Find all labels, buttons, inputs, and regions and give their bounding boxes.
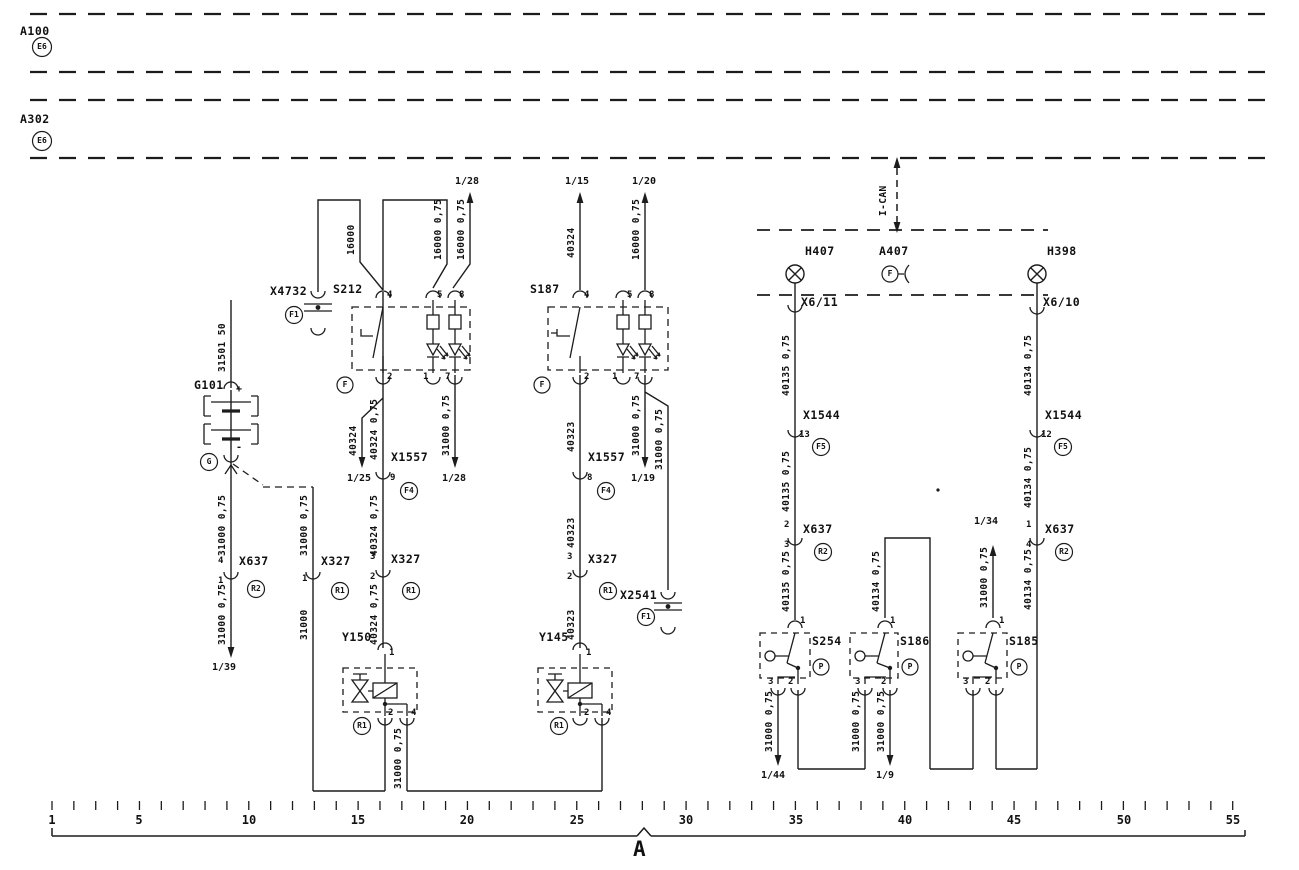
ruler-label-10: 10 xyxy=(234,813,264,827)
ruler-label-40: 40 xyxy=(890,813,920,827)
h398-lamp-symbol xyxy=(1028,265,1046,283)
wire-right-col1: 40134 0,75 xyxy=(1023,335,1034,396)
h398-label: H398 xyxy=(1047,244,1077,258)
s186-pin3: 3 xyxy=(855,677,860,687)
wire-x327-ground: 31000 xyxy=(299,609,310,640)
x327-left-label: X327 xyxy=(391,552,421,566)
wire-s212-out2: 40324 0,75 xyxy=(369,495,380,556)
ref-1-20: 1/20 xyxy=(632,176,656,187)
wire-s212-feed: 16000 xyxy=(346,224,357,255)
s185-label: S185 xyxy=(1009,634,1039,648)
ruler-label-45: 45 xyxy=(999,813,1029,827)
ruler-label-5: 5 xyxy=(124,813,154,827)
wire-s185-out: 31000 0,75 xyxy=(979,547,990,608)
h407-label: H407 xyxy=(805,244,835,258)
x327-left-code: R1 xyxy=(399,586,423,595)
x637-m-pin-out: 3 xyxy=(784,540,789,550)
wire-s187-ground-branch: 31000 0,75 xyxy=(654,409,665,470)
x327-left-pin-out: 2 xyxy=(370,572,375,582)
x1557-right-label: X1557 xyxy=(588,450,625,464)
g101-minus: - xyxy=(236,442,242,453)
y150-code: R1 xyxy=(350,721,374,730)
wire-s212-illum: 16000 0,75 xyxy=(433,199,444,260)
x1544-right-pin: 12 xyxy=(1041,430,1052,440)
ref-1-39: 1/39 xyxy=(212,662,236,673)
harness-a302-code: E6 xyxy=(30,136,54,145)
ruler-label-15: 15 xyxy=(343,813,373,827)
s254-pin1: 1 xyxy=(800,616,805,626)
x2541-label: X2541 xyxy=(620,588,657,602)
wire-s187-out2: 40323 xyxy=(566,517,577,548)
s212-pin4: 4 xyxy=(387,290,392,300)
x637-r-label: X637 xyxy=(1045,522,1075,536)
wire-s186-ground2: 31000 0,75 xyxy=(876,691,887,752)
x327-left-pin-in: 3 xyxy=(370,552,375,562)
x327-right-pin-out: 2 xyxy=(567,572,572,582)
ruler-label-25: 25 xyxy=(562,813,592,827)
x1557-left-label: X1557 xyxy=(391,450,428,464)
x6-10-label: X6/10 xyxy=(1043,295,1080,309)
y150-label: Y150 xyxy=(342,630,372,644)
x327-g-code: R1 xyxy=(328,586,352,595)
y145-code: R1 xyxy=(547,721,571,730)
s185-pin1: 1 xyxy=(999,616,1004,626)
s187-pin7: 7 xyxy=(634,372,639,382)
wire-s254-ground: 31000 0,75 xyxy=(764,691,775,752)
h407-lamp-symbol xyxy=(786,265,804,283)
x1557-right-pin: 8 xyxy=(587,473,592,483)
s186-pin1: 1 xyxy=(890,616,895,626)
y150-pin1: 1 xyxy=(389,648,394,658)
x637-r-pin-in: 1 xyxy=(1026,520,1031,530)
s186-code: P xyxy=(898,662,922,671)
x1544-left-pin: 13 xyxy=(799,430,810,440)
x327-g-pin: 1 xyxy=(302,574,307,584)
wire-left-col3: 40135 0,75 xyxy=(781,551,792,612)
x637-m-pin-in: 2 xyxy=(784,520,789,530)
ruler xyxy=(52,801,1245,836)
x1544-left-code: F5 xyxy=(809,442,833,451)
ref-1-28-top: 1/28 xyxy=(455,176,479,187)
wire-s212-branch: 40324 xyxy=(348,425,359,456)
y145-symbol xyxy=(538,654,612,716)
x327-right-label: X327 xyxy=(588,552,618,566)
harness-a100-code: E6 xyxy=(30,42,54,51)
x637-g-code: R2 xyxy=(244,584,268,593)
ecu-boundary-lines xyxy=(757,230,1048,295)
ruler-label-35: 35 xyxy=(781,813,811,827)
schematic-page: A100 E6 A302 E6 I-CAN G101 + - G 31501 5… xyxy=(0,0,1299,870)
y150-pin2: 2 xyxy=(388,708,393,718)
g101-plus: + xyxy=(236,384,242,395)
wire-s212-indicator: 16000 0,75 xyxy=(456,199,467,260)
s187-label: S187 xyxy=(530,282,560,296)
s212-pin7: 7 xyxy=(445,372,450,382)
x6-11-label: X6/11 xyxy=(801,295,838,309)
x637-g-pin-in: 4 xyxy=(218,556,223,566)
wire-battery-ground1: 31000 0,75 xyxy=(217,495,228,556)
s212-pin5: 5 xyxy=(437,290,442,300)
ruler-label-30: 30 xyxy=(671,813,701,827)
s254-label: S254 xyxy=(812,634,842,648)
ref-1-34: 1/34 xyxy=(974,516,998,527)
y150-symbol xyxy=(343,654,417,716)
s186-label: S186 xyxy=(900,634,930,648)
x1557-right-code: F4 xyxy=(594,486,618,495)
wire-valve-link: 31000 0,75 xyxy=(393,728,404,789)
s186-pin2: 2 xyxy=(881,677,886,687)
x637-g-label: X637 xyxy=(239,554,269,568)
ruler-label-20: 20 xyxy=(452,813,482,827)
x4732-label: X4732 xyxy=(270,284,307,298)
wire-s212-out1: 40324 0,75 xyxy=(369,399,380,460)
a407-code: F xyxy=(878,269,902,278)
x327-right-code: R1 xyxy=(596,586,620,595)
s212-symbol xyxy=(352,300,470,373)
s187-pin1: 1 xyxy=(612,372,617,382)
s212-pin1: 1 xyxy=(423,372,428,382)
ref-1-28-mid: 1/28 xyxy=(442,473,466,484)
ref-1-44: 1/44 xyxy=(761,770,785,781)
wire-s212-ground: 31000 0,75 xyxy=(441,395,452,456)
s185-pin3: 3 xyxy=(963,677,968,687)
x637-m-code: R2 xyxy=(811,547,835,556)
x637-m-label: X637 xyxy=(803,522,833,536)
s212-label: S212 xyxy=(333,282,363,296)
s187-code: F xyxy=(530,380,554,389)
s185-pin2: 2 xyxy=(985,677,990,687)
wire-battery-ground2: 31000 0,75 xyxy=(217,584,228,645)
ruler-label-55: 55 xyxy=(1218,813,1248,827)
harness-a100-label: A100 xyxy=(20,24,50,38)
harness-lines xyxy=(30,14,1272,158)
a407-label: A407 xyxy=(879,244,909,258)
sheet-marker: A xyxy=(633,837,646,861)
x1544-right-code: F5 xyxy=(1051,442,1075,451)
y150-pin4: 4 xyxy=(411,708,416,718)
wire-31501-50: 31501 50 xyxy=(217,323,228,372)
y145-label: Y145 xyxy=(539,630,569,644)
y145-pin4: 4 xyxy=(606,708,611,718)
s212-pin2: 2 xyxy=(387,372,392,382)
x2541-code: F1 xyxy=(634,612,658,621)
wire-s187-out1: 40323 xyxy=(566,421,577,452)
wire-mid-col: 40134 0,75 xyxy=(871,551,882,612)
ican-bus-label: I-CAN xyxy=(878,185,889,216)
x1557-left-code: F4 xyxy=(397,486,421,495)
g101-label: G101 xyxy=(194,378,224,392)
s187-pin5: 5 xyxy=(627,290,632,300)
x327-g-label: X327 xyxy=(321,554,351,568)
wire-right-col3: 40134 0,75 xyxy=(1023,549,1034,610)
x637-r-code: R2 xyxy=(1052,547,1076,556)
wire-s187-indicator: 16000 0,75 xyxy=(631,199,642,260)
ref-1-25: 1/25 xyxy=(347,473,371,484)
s187-pin4: 4 xyxy=(584,290,589,300)
x327-right-pin-in: 3 xyxy=(567,552,572,562)
s187-pin8: 8 xyxy=(649,290,654,300)
schematic-linework xyxy=(0,0,1299,870)
ruler-label-1: 1 xyxy=(37,813,67,827)
wire-left-col2: 40135 0,75 xyxy=(781,451,792,512)
y145-pin2: 2 xyxy=(584,708,589,718)
s254-pin2: 2 xyxy=(788,677,793,687)
wire-s187-ground: 31000 0,75 xyxy=(631,395,642,456)
x1544-right-label: X1544 xyxy=(1045,408,1082,422)
ref-1-15: 1/15 xyxy=(565,176,589,187)
g101-code: G xyxy=(197,457,221,466)
s254-code: P xyxy=(809,662,833,671)
wire-s186-ground3: 31000 0,75 xyxy=(851,691,862,752)
wire-left-col1: 40135 0,75 xyxy=(781,335,792,396)
x4732-code: F1 xyxy=(282,310,306,319)
ref-1-19: 1/19 xyxy=(631,473,655,484)
ruler-label-50: 50 xyxy=(1109,813,1139,827)
x4732-symbol xyxy=(304,291,332,335)
harness-a302-label: A302 xyxy=(20,112,50,126)
s212-pin8: 8 xyxy=(459,290,464,300)
s212-code: F xyxy=(333,380,357,389)
x2541-symbol xyxy=(654,592,682,634)
s254-pin3: 3 xyxy=(768,677,773,687)
x1557-left-pin: 9 xyxy=(390,473,395,483)
ref-1-9: 1/9 xyxy=(876,770,894,781)
print-speck xyxy=(936,488,939,491)
s187-symbol xyxy=(548,300,668,373)
s185-code: P xyxy=(1007,662,1031,671)
wire-s187-up: 40324 xyxy=(566,227,577,258)
wire-right-col2: 40134 0,75 xyxy=(1023,447,1034,508)
ican-bus-link xyxy=(894,157,901,233)
wire-battery-ground-branch: 31000 0,75 xyxy=(299,495,310,556)
s187-pin2: 2 xyxy=(584,372,589,382)
battery-branch-dashed xyxy=(233,464,313,487)
x1544-left-label: X1544 xyxy=(803,408,840,422)
y145-pin1: 1 xyxy=(586,648,591,658)
